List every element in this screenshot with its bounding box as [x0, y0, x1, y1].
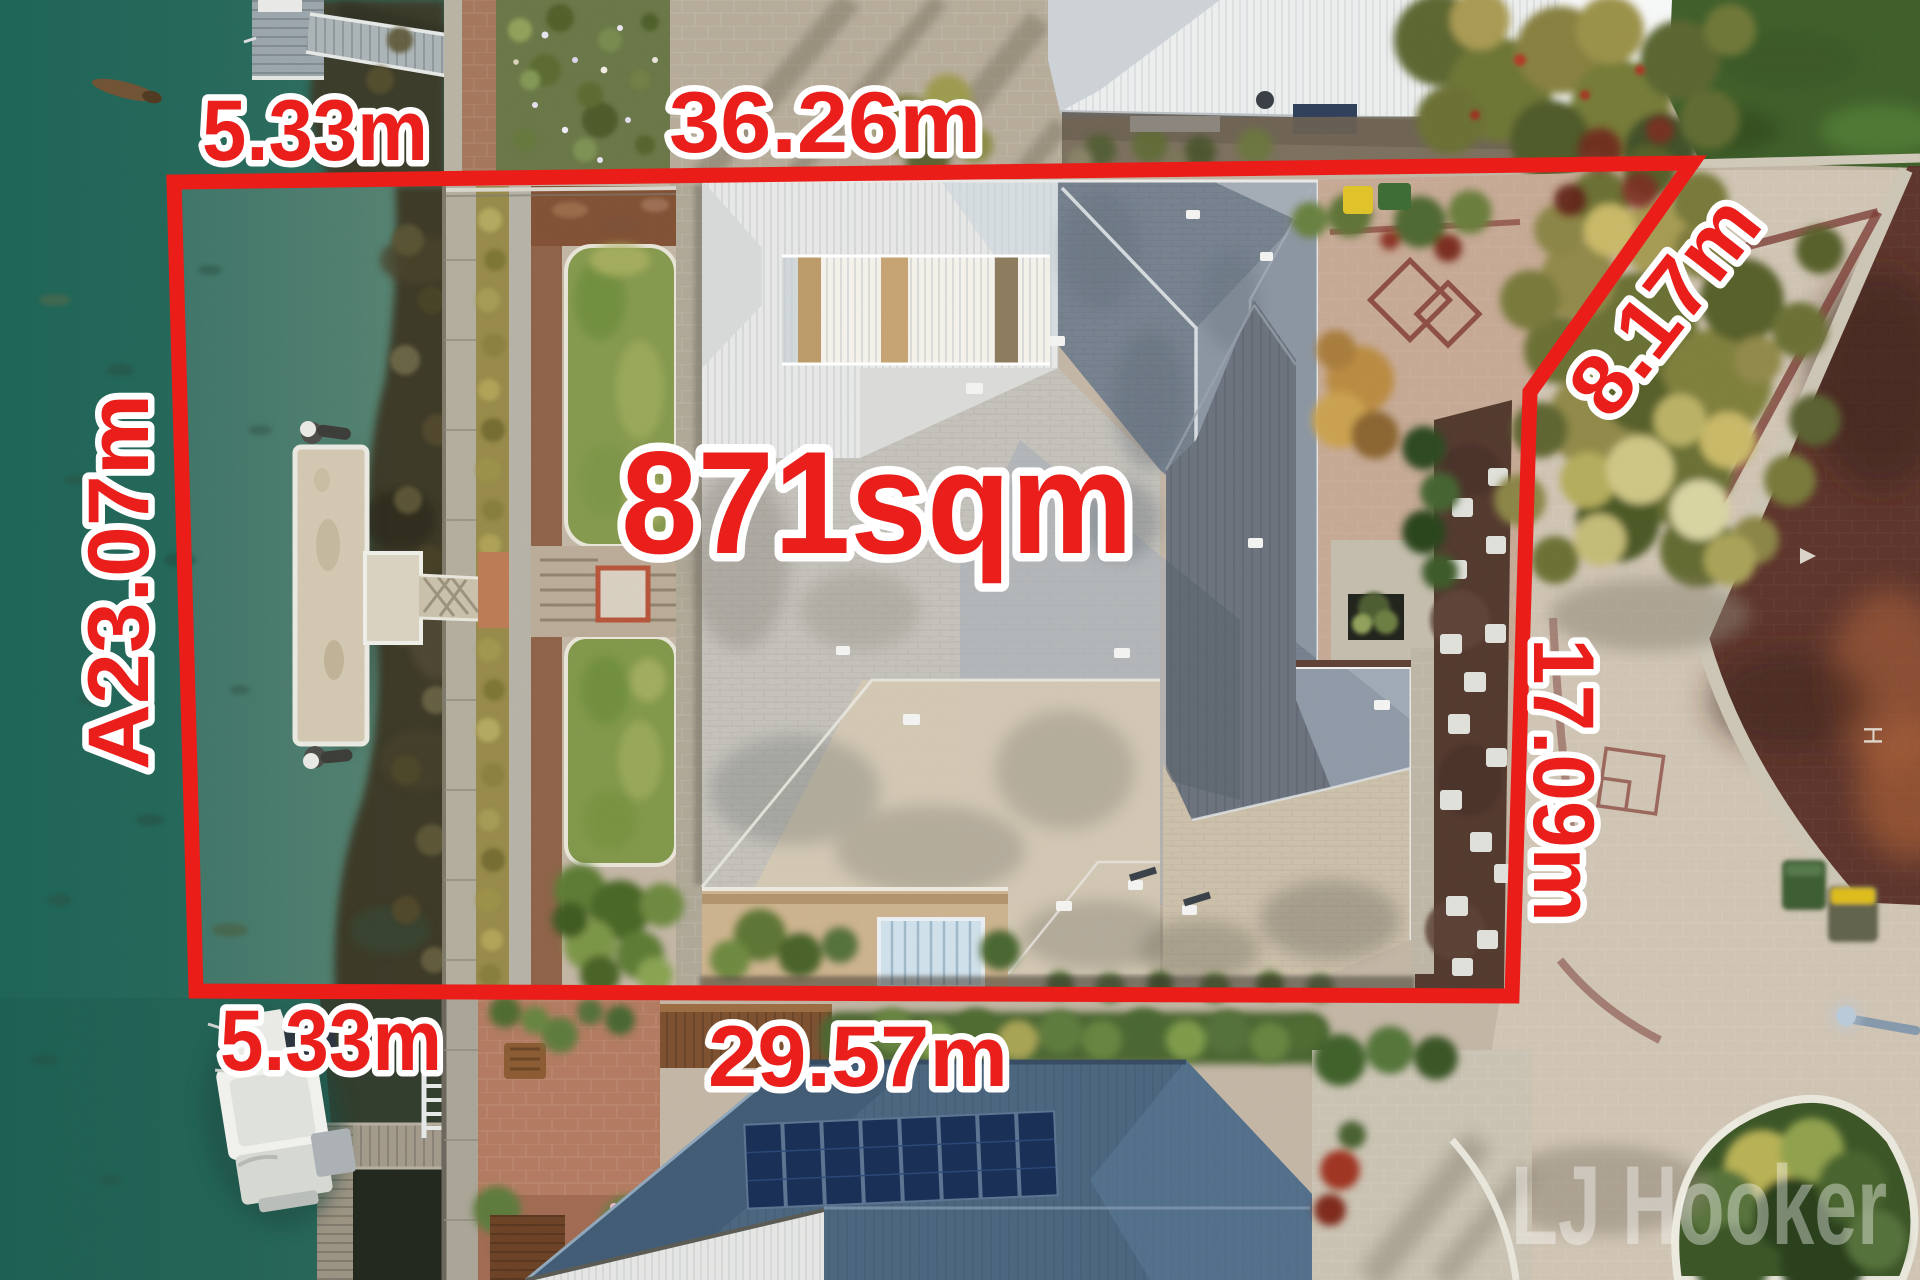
svg-text:17.09m: 17.09m [1515, 638, 1611, 922]
svg-text:29.57m: 29.57m [708, 1009, 1008, 1105]
svg-text:A23.07m: A23.07m [71, 394, 167, 770]
svg-text:5.33m: 5.33m [202, 83, 428, 179]
svg-text:36.26m: 36.26m [669, 75, 981, 171]
svg-text:LJ Hooker: LJ Hooker [1511, 1143, 1887, 1268]
svg-text:871sqm: 871sqm [621, 421, 1133, 584]
svg-text:5.33m: 5.33m [220, 993, 442, 1089]
